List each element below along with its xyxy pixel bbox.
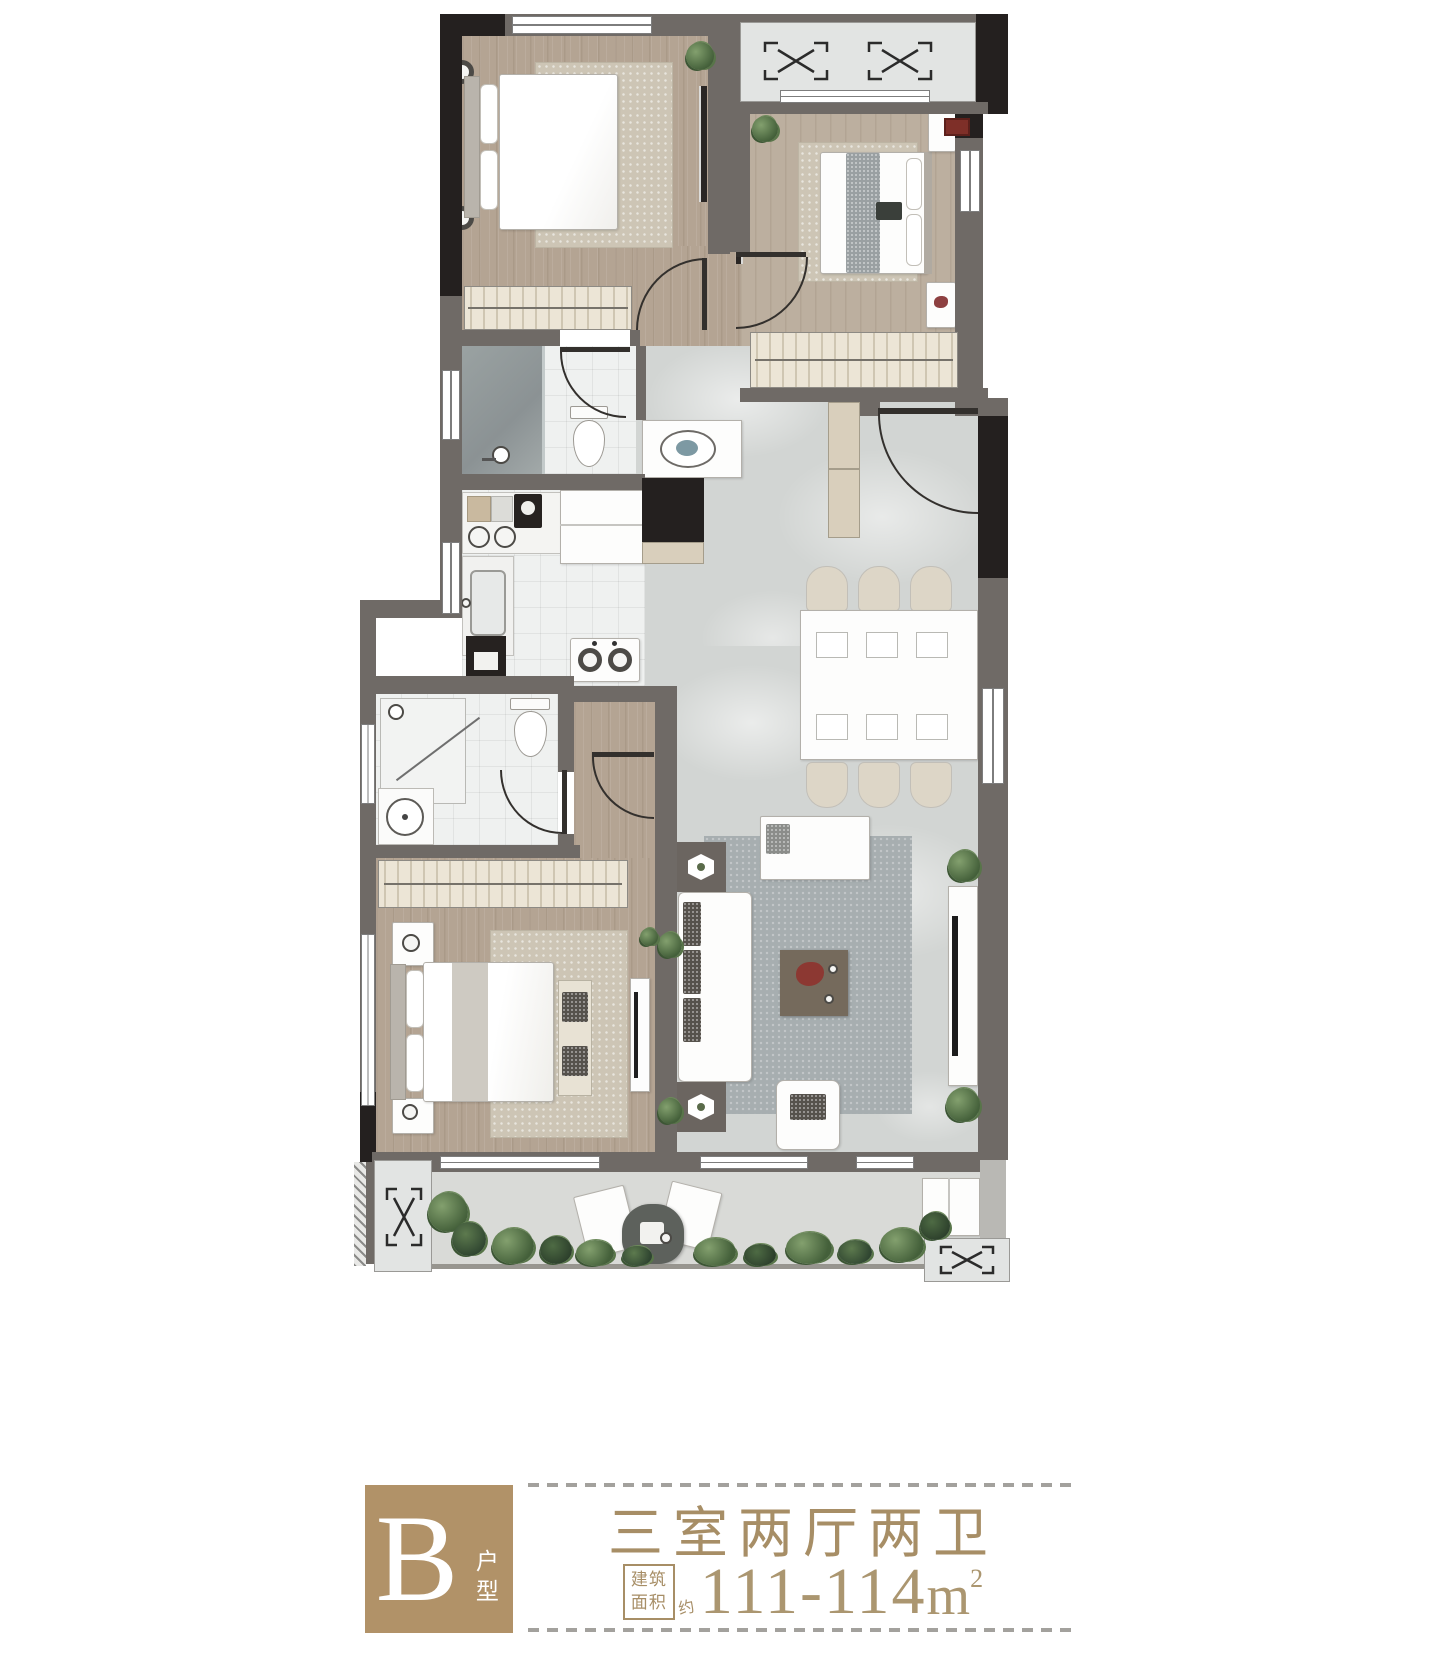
wall: [740, 14, 976, 22]
unit-letter: B: [376, 1497, 459, 1621]
area-label-line2: 面积: [631, 1592, 667, 1615]
bed-1-headboard: [464, 76, 480, 218]
unit-type-badge: B 户型: [365, 1485, 513, 1633]
plant-icon: [658, 1098, 682, 1124]
area-approx: 约: [676, 1593, 697, 1620]
place-setting: [916, 632, 948, 658]
shower-head-icon: [492, 446, 510, 464]
shrub-icon: [622, 1246, 652, 1266]
fridge-divider: [560, 524, 644, 526]
wall: [630, 330, 640, 346]
hex-decor-icon: [688, 1094, 714, 1120]
burner-icon: [608, 648, 632, 672]
window: [512, 16, 652, 34]
bench-cushion: [562, 992, 588, 1022]
armchair-cushion: [790, 1094, 826, 1120]
bed-2-pillow: [906, 214, 922, 266]
dining-chair: [910, 566, 952, 612]
plant-icon: [658, 932, 682, 958]
side-table: [676, 1082, 726, 1132]
bench-cushion: [562, 1046, 588, 1076]
window: [442, 370, 460, 440]
bed-2-headboard: [924, 152, 932, 274]
shrub-icon: [744, 1244, 776, 1266]
window: [780, 90, 930, 103]
floorplan-page: B 户型 三室两厅两卫 建筑 面积 约 111-114 m 2: [0, 0, 1442, 1660]
lamp-icon: [402, 1104, 418, 1120]
terrace-edge: [374, 1264, 986, 1269]
shrub-icon: [452, 1222, 486, 1256]
pot-icon: [468, 526, 490, 548]
appliance-dial: [521, 501, 535, 515]
area-value: 111-114: [700, 1564, 927, 1620]
wall-art: [944, 118, 970, 136]
bed-1-pillow: [480, 84, 498, 144]
shrub-icon: [838, 1240, 872, 1264]
shrub-icon: [880, 1228, 924, 1262]
wall: [976, 14, 1008, 114]
faucet-icon: [461, 598, 471, 608]
master-tv-console: [630, 978, 650, 1092]
oven-window: [474, 652, 498, 670]
bed-2-tray: [876, 202, 902, 220]
place-setting: [866, 714, 898, 740]
teacup-icon: [824, 994, 834, 1004]
dining-chair: [910, 762, 952, 808]
fridge: [560, 490, 644, 564]
window: [856, 1156, 914, 1169]
lamp-icon: [402, 934, 420, 952]
area-label-line1: 建筑: [631, 1569, 667, 1592]
sofa-cushion: [683, 998, 701, 1042]
shower-arm: [482, 458, 496, 461]
plant-icon: [640, 928, 658, 946]
shower-head-icon: [388, 704, 404, 720]
bed-1-pillow: [480, 150, 498, 210]
wall: [368, 676, 574, 694]
counter-item: [491, 496, 513, 522]
shrub-icon: [492, 1228, 534, 1264]
wall: [636, 346, 646, 420]
dashed-divider-bottom: [528, 1628, 1078, 1632]
pot-icon: [494, 526, 516, 548]
window: [361, 934, 375, 1106]
wall: [368, 845, 580, 858]
shrub-icon: [576, 1240, 614, 1266]
wall: [440, 330, 560, 346]
floor-plan: [0, 0, 1442, 1300]
master-wardrobe: [378, 860, 628, 908]
ac-unit-icon: [938, 1244, 996, 1276]
window: [361, 724, 375, 804]
unit-type-label: 户型: [468, 1549, 502, 1609]
wall: [655, 702, 677, 1158]
bedroom-1-wardrobe: [464, 286, 632, 330]
window: [982, 688, 1004, 784]
window: [700, 1156, 808, 1169]
window: [440, 1156, 600, 1169]
wall: [558, 694, 574, 772]
toilet: [510, 698, 550, 710]
ac-unit-icon: [762, 40, 830, 82]
dashed-divider-top: [528, 1483, 1078, 1487]
plant-icon: [948, 850, 980, 882]
sofa-cushion: [683, 902, 701, 946]
cup-icon: [660, 1232, 672, 1244]
hex-decor-icon: [688, 854, 714, 880]
shrub-icon: [920, 1212, 950, 1240]
flower-decor: [934, 296, 948, 308]
legend: B 户型 三室两厅两卫 建筑 面积 约 111-114 m 2: [0, 1400, 1442, 1660]
master-bed-runner: [452, 963, 488, 1101]
foyer-cabinet: [828, 402, 860, 538]
shrub-icon: [540, 1236, 572, 1264]
master-headboard: [390, 964, 406, 1100]
wall: [558, 686, 677, 702]
kitchen-sink: [470, 570, 506, 636]
wall: [440, 14, 462, 304]
chaise-pillow: [766, 824, 790, 854]
media-strip: [701, 86, 707, 202]
place-setting: [866, 632, 898, 658]
window: [442, 542, 460, 614]
dining-chair: [858, 762, 900, 808]
wall: [860, 398, 880, 416]
burner-knob: [612, 641, 617, 646]
burner-icon: [578, 648, 602, 672]
wall: [440, 474, 645, 490]
door-leaf: [562, 770, 567, 834]
dining-chair: [806, 566, 848, 612]
sofa-cushion: [683, 950, 701, 994]
tv: [952, 916, 958, 1056]
wall: [730, 14, 740, 102]
plant-icon: [752, 116, 778, 142]
plant-icon: [686, 42, 714, 70]
area-unit: m: [927, 1573, 971, 1621]
place-setting: [916, 714, 948, 740]
side-table: [676, 842, 726, 892]
wall: [978, 578, 1008, 1160]
bed-2-runner: [846, 153, 880, 273]
ac-unit-icon: [866, 40, 934, 82]
bed-1: [499, 74, 618, 230]
area-row: 建筑 面积 约 111-114 m 2: [528, 1564, 1078, 1620]
basin-water: [676, 440, 698, 456]
bed-2-pillow: [906, 158, 922, 210]
pantry-cabinet: [642, 542, 704, 564]
area-unit-sup: 2: [970, 1564, 983, 1594]
wall: [730, 102, 750, 252]
cabinet-shelf-line: [828, 468, 860, 470]
teacup-icon: [828, 964, 838, 974]
window: [960, 150, 980, 212]
counter-item: [467, 496, 491, 522]
master-bed: [423, 962, 554, 1102]
master-pillow: [406, 1034, 424, 1092]
shrub-icon: [786, 1232, 832, 1264]
dining-chair: [858, 566, 900, 612]
wall: [730, 102, 988, 114]
master-pillow: [406, 970, 424, 1028]
shrub-icon: [694, 1238, 736, 1266]
place-setting: [816, 632, 848, 658]
place-setting: [816, 714, 848, 740]
shower-glass-1: [542, 346, 545, 474]
burner-knob: [592, 641, 597, 646]
dining-chair: [806, 762, 848, 808]
area-label-box: 建筑 面积: [623, 1564, 675, 1620]
plant-icon: [946, 1088, 980, 1122]
master-tv: [634, 992, 638, 1078]
wall: [978, 416, 1008, 578]
basin-drain: [402, 814, 408, 820]
wall: [642, 478, 704, 542]
bedroom-2-wardrobe: [750, 332, 958, 388]
ac-unit-icon: [384, 1186, 424, 1248]
hatch-strip: [354, 1162, 366, 1266]
